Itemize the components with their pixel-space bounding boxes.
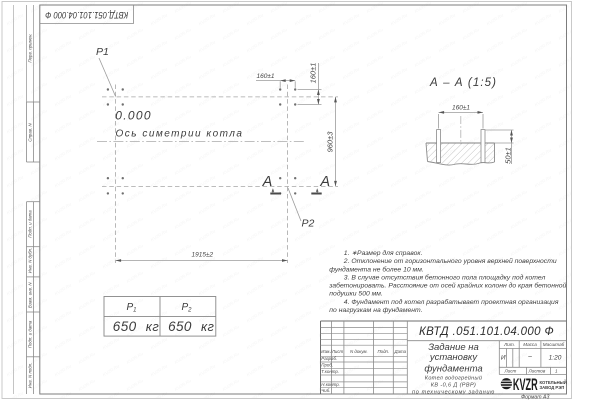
svg-text:А: А <box>319 174 330 190</box>
svg-text:Масса: Масса <box>523 342 537 347</box>
svg-text:КВТД .051.101.04.000 Ф: КВТД .051.101.04.000 Ф <box>419 326 554 338</box>
svg-text:Перв. примен.: Перв. примен. <box>28 33 33 62</box>
svg-text:подушки 500 мм.: подушки 500 мм. <box>329 290 383 298</box>
svg-text:Листов: Листов <box>528 368 546 373</box>
svg-text:960±3: 960±3 <box>325 131 334 153</box>
svg-text:по нагрузкам на фундамент.: по нагрузкам на фундамент. <box>329 306 422 314</box>
svg-text:1:20: 1:20 <box>549 355 562 362</box>
svg-text:2. Отклонение от горизонтально: 2. Отклонение от горизонтального уровня … <box>343 257 557 265</box>
svg-text:И: И <box>501 355 506 362</box>
svg-text:160±1: 160±1 <box>257 73 275 80</box>
svg-text:А: А <box>262 174 273 190</box>
svg-text:3. В случае отсутствия бетонно: 3. В случае отсутствия бетонного пола пл… <box>344 273 546 281</box>
svg-text:1. ∗Размер для справок.: 1. ∗Размер для справок. <box>344 249 423 257</box>
svg-text:160±1: 160±1 <box>309 63 318 84</box>
svg-text:кг: кг <box>201 319 215 334</box>
svg-text:50±1: 50±1 <box>503 147 512 164</box>
svg-text:Чиб.: Чиб. <box>321 388 330 393</box>
svg-text:по техническому заданию: по техническому заданию <box>412 389 495 395</box>
svg-text:Изм./Лист: Изм./Лист <box>321 349 343 354</box>
svg-text:P2: P2 <box>302 218 315 230</box>
svg-text:Справ. N: Справ. N <box>28 122 33 141</box>
svg-text:Проб.: Проб. <box>321 362 333 367</box>
svg-text:А – А (1:5): А – А (1:5) <box>429 77 497 89</box>
svg-text:установку: установку <box>429 352 479 363</box>
svg-text:Подп. и дата: Подп. и дата <box>28 210 33 238</box>
svg-text:N докум.: N докум. <box>350 349 368 354</box>
svg-text:4. Фундамент под котел разраба: 4. Фундамент под котел разрабатывает про… <box>344 298 559 306</box>
svg-text:Формат А3: Формат А3 <box>521 395 549 400</box>
svg-text:1: 1 <box>555 368 558 373</box>
svg-text:кг: кг <box>146 319 160 334</box>
svg-text:650: 650 <box>168 319 192 334</box>
svg-text:фундамента не более 10 мм.: фундамента не более 10 мм. <box>329 265 424 273</box>
svg-text:Н.контр.: Н.контр. <box>321 382 340 387</box>
svg-text:Задание на: Задание на <box>428 342 479 353</box>
svg-text:650: 650 <box>113 319 137 334</box>
svg-text:Масштаб: Масштаб <box>543 342 565 347</box>
svg-text:Взам. инв. N: Взам. инв. N <box>28 282 33 308</box>
svg-text:ЗАВОД РЭП: ЗАВОД РЭП <box>540 385 565 390</box>
svg-text:Подп. и дата: Подп. и дата <box>28 320 33 348</box>
svg-text:KVZR: KVZR <box>513 375 538 394</box>
svg-text:1915±2: 1915±2 <box>192 251 214 258</box>
svg-text:КВ -0,6 Д (РВР): КВ -0,6 Д (РВР) <box>431 382 477 388</box>
svg-text:–: – <box>527 354 532 361</box>
svg-text:P1: P1 <box>96 46 109 58</box>
svg-text:Т.контр.: Т.контр. <box>321 369 339 374</box>
svg-text:160±1: 160±1 <box>452 105 470 112</box>
svg-text:фундамента: фундамента <box>424 364 482 375</box>
svg-text:Ось симетрии котла: Ось симетрии котла <box>116 129 244 140</box>
svg-text:Лит.: Лит. <box>503 342 515 347</box>
svg-text:Котел водогрейный: Котел водогрейный <box>425 375 482 382</box>
svg-text:Разраб.: Разраб. <box>321 356 337 361</box>
svg-text:забетонировать. Расстояние от: забетонировать. Расстояние от осей крайн… <box>328 282 566 290</box>
svg-text:Инв. N подл.: Инв. N подл. <box>28 363 33 389</box>
svg-text:Подп.: Подп. <box>378 349 390 354</box>
svg-text:Лист: Лист <box>504 368 517 373</box>
svg-text:КВТД.051.101.04.000 Ф: КВТД.051.101.04.000 Ф <box>45 10 128 20</box>
svg-text:0.000: 0.000 <box>115 109 152 123</box>
svg-text:Дата: Дата <box>394 349 407 354</box>
svg-text:Инв. N дубл.: Инв. N дубл. <box>28 248 33 273</box>
